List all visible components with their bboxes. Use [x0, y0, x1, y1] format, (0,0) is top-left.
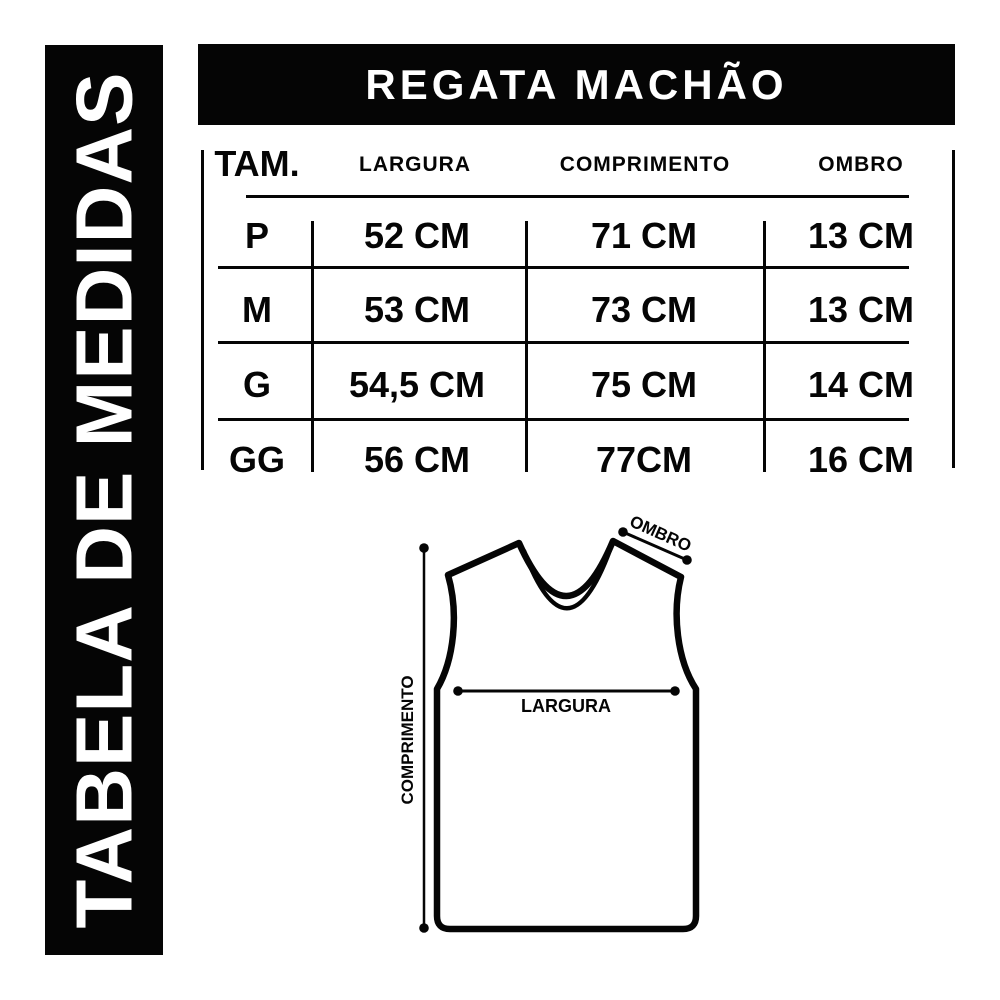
- cell-comprimento-m: 73 CM: [591, 289, 697, 331]
- cell-ombro-gg: 16 CM: [808, 439, 914, 481]
- cell-largura-p: 52 CM: [364, 215, 470, 257]
- comprimento-dot-top: [419, 543, 429, 553]
- column-header-comprimento: COMPRIMENTO: [560, 153, 730, 177]
- cell-size-m: M: [242, 289, 272, 331]
- product-title-bar: REGATA MACHÃO: [198, 44, 955, 125]
- cell-size-gg: GG: [229, 439, 285, 481]
- table-border-right: [952, 150, 955, 468]
- column-header-ombro: OMBRO: [818, 153, 904, 177]
- table-row-divider-1: [218, 266, 909, 269]
- table-column-divider-1: [311, 221, 314, 472]
- tank-top-diagram: COMPRIMENTO LARGURA OMBRO: [370, 502, 730, 967]
- cell-largura-gg: 56 CM: [364, 439, 470, 481]
- column-header-largura: LARGURA: [359, 153, 471, 177]
- tank-top-outline: [437, 541, 696, 929]
- table-row-divider-2: [218, 341, 909, 344]
- column-header-tam: TAM.: [214, 143, 299, 185]
- cell-ombro-g: 14 CM: [808, 364, 914, 406]
- largura-label: LARGURA: [521, 696, 611, 716]
- measurements-banner: TABELA DE MEDIDAS: [45, 45, 163, 955]
- cell-comprimento-p: 71 CM: [591, 215, 697, 257]
- cell-size-p: P: [245, 215, 269, 257]
- table-column-divider-2: [525, 221, 528, 472]
- cell-comprimento-gg: 77CM: [596, 439, 692, 481]
- cell-ombro-p: 13 CM: [808, 215, 914, 257]
- comprimento-label: COMPRIMENTO: [398, 675, 417, 804]
- table-border-left: [201, 150, 204, 470]
- comprimento-dot-bottom: [419, 923, 429, 933]
- largura-dot-left: [453, 686, 463, 696]
- banner-label: TABELA DE MEDIDAS: [58, 72, 150, 929]
- cell-size-g: G: [243, 364, 271, 406]
- ombro-dot-right: [682, 555, 692, 565]
- table-header-divider: [246, 195, 909, 198]
- cell-largura-g: 54,5 CM: [349, 364, 485, 406]
- cell-ombro-m: 13 CM: [808, 289, 914, 331]
- product-title: REGATA MACHÃO: [365, 61, 787, 109]
- cell-comprimento-g: 75 CM: [591, 364, 697, 406]
- cell-largura-m: 53 CM: [364, 289, 470, 331]
- table-row-divider-3: [218, 418, 909, 421]
- table-column-divider-3: [763, 221, 766, 472]
- largura-dot-right: [670, 686, 680, 696]
